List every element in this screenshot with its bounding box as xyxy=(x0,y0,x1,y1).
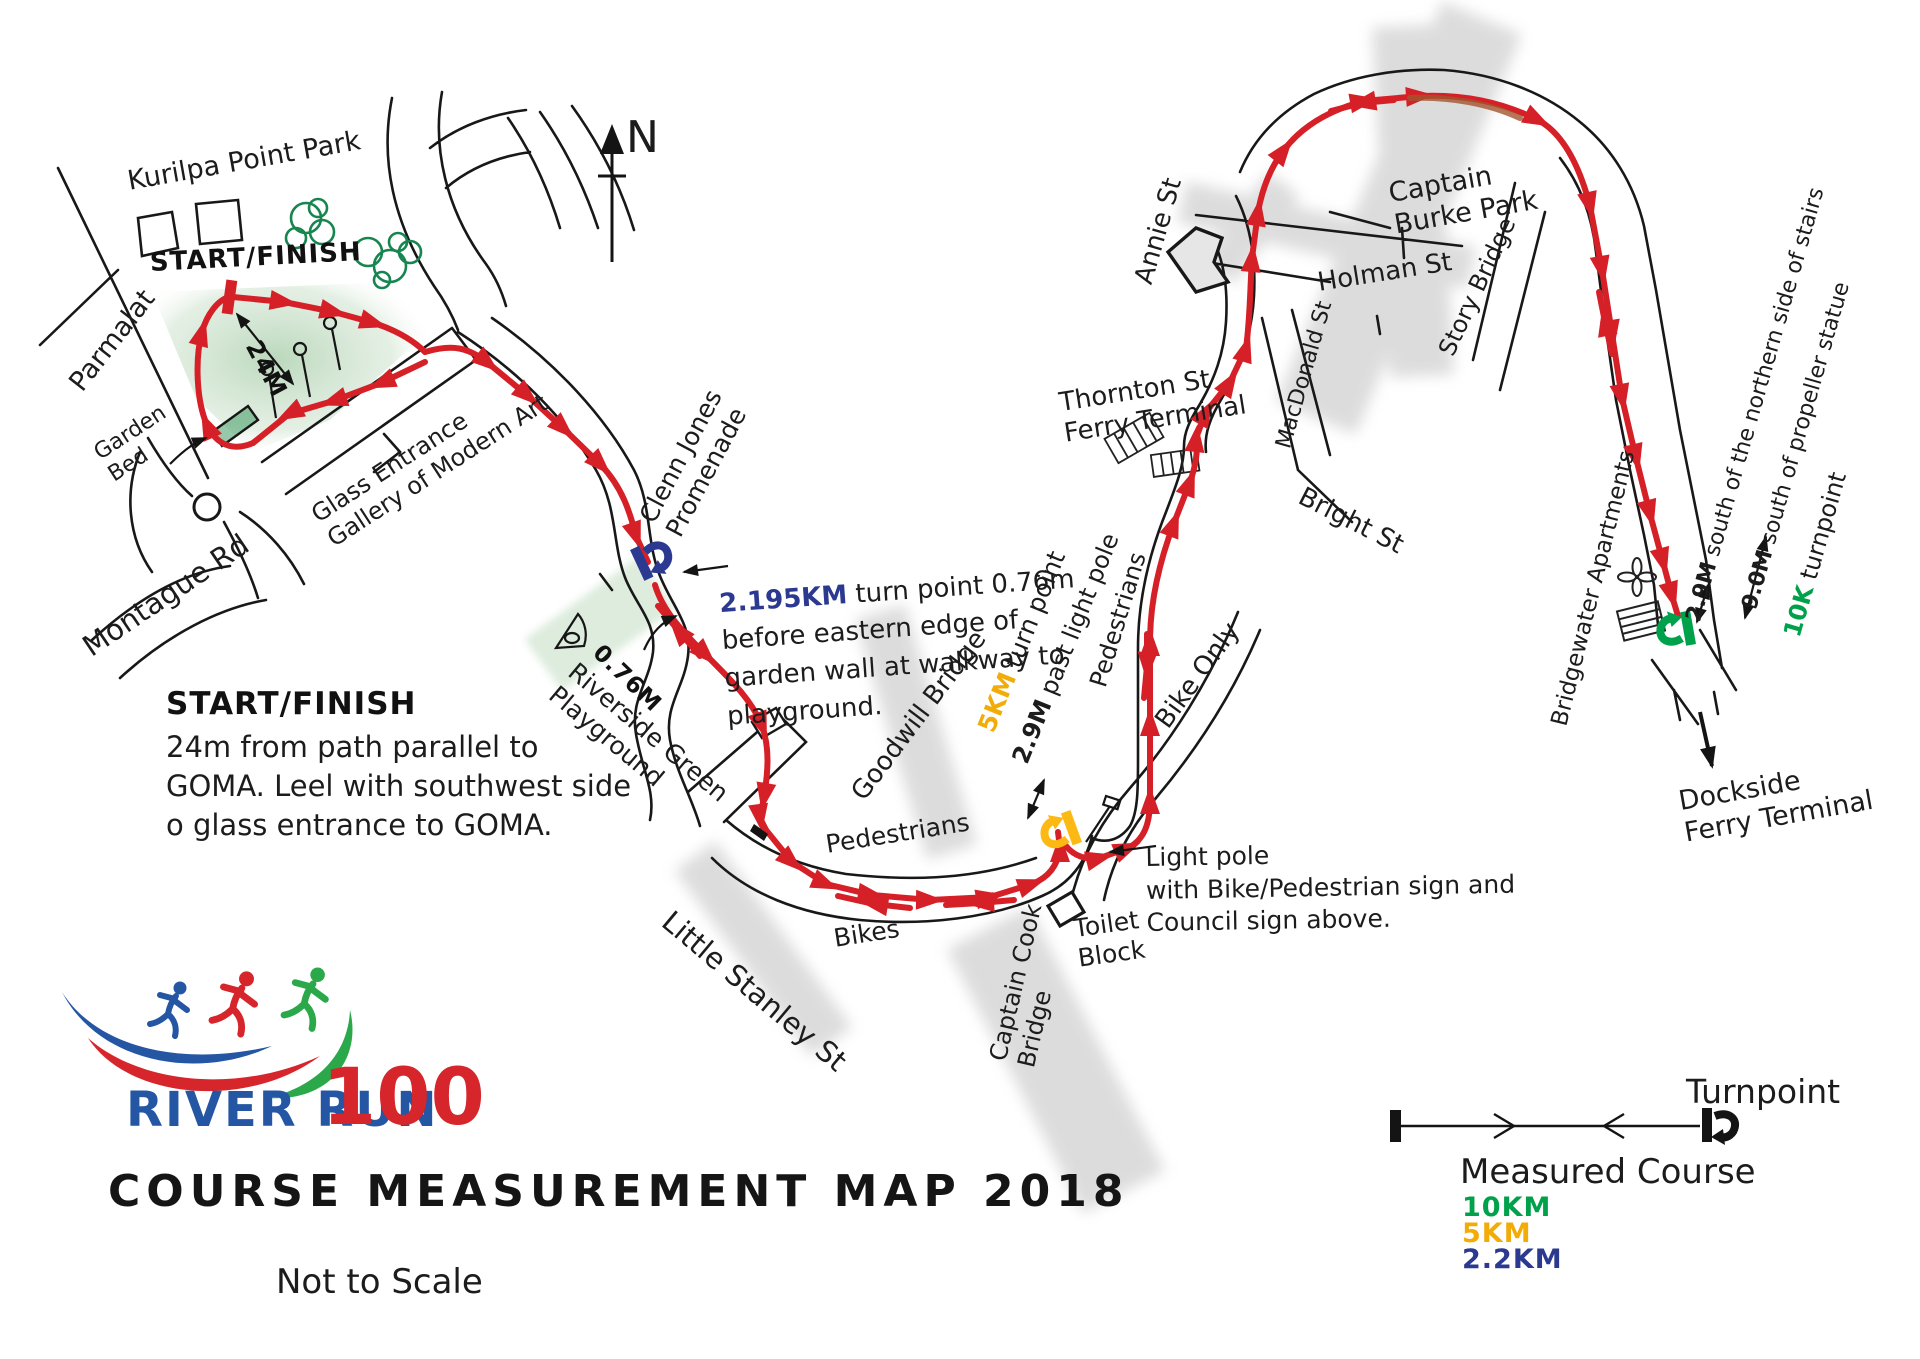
legend-2-2km: 2.2KM xyxy=(1462,1244,1563,1276)
legend-turnpoint-label: Turnpoint xyxy=(1686,1072,1840,1112)
course-map: Kurilpa Point Park START/FINISH 24M Parm… xyxy=(0,0,1920,1359)
annotation-2195km-value: 2.195KM xyxy=(718,580,848,619)
legend-turnpoint-icon xyxy=(1702,1108,1735,1145)
legend-course-line xyxy=(1390,1110,1700,1142)
label-toilet-block: Toilet Block xyxy=(1072,905,1147,974)
runner-icons xyxy=(150,967,325,1036)
scale-note: Not to Scale xyxy=(276,1262,483,1303)
annotation-light-pole: Light pole with Bike/Pedestrian sign and… xyxy=(1145,836,1516,940)
start-finish-note-heading: START/FINISH xyxy=(166,686,416,723)
legend-measured-course: Measured Course xyxy=(1460,1152,1756,1193)
map-title: COURSE MEASUREMENT MAP 2018 xyxy=(108,1166,1129,1219)
logo-100: 100 xyxy=(322,1052,485,1146)
compass-north-label: N xyxy=(626,112,659,165)
start-finish-note-body: 24m from path parallel to GOMA. Leel wit… xyxy=(166,728,631,845)
